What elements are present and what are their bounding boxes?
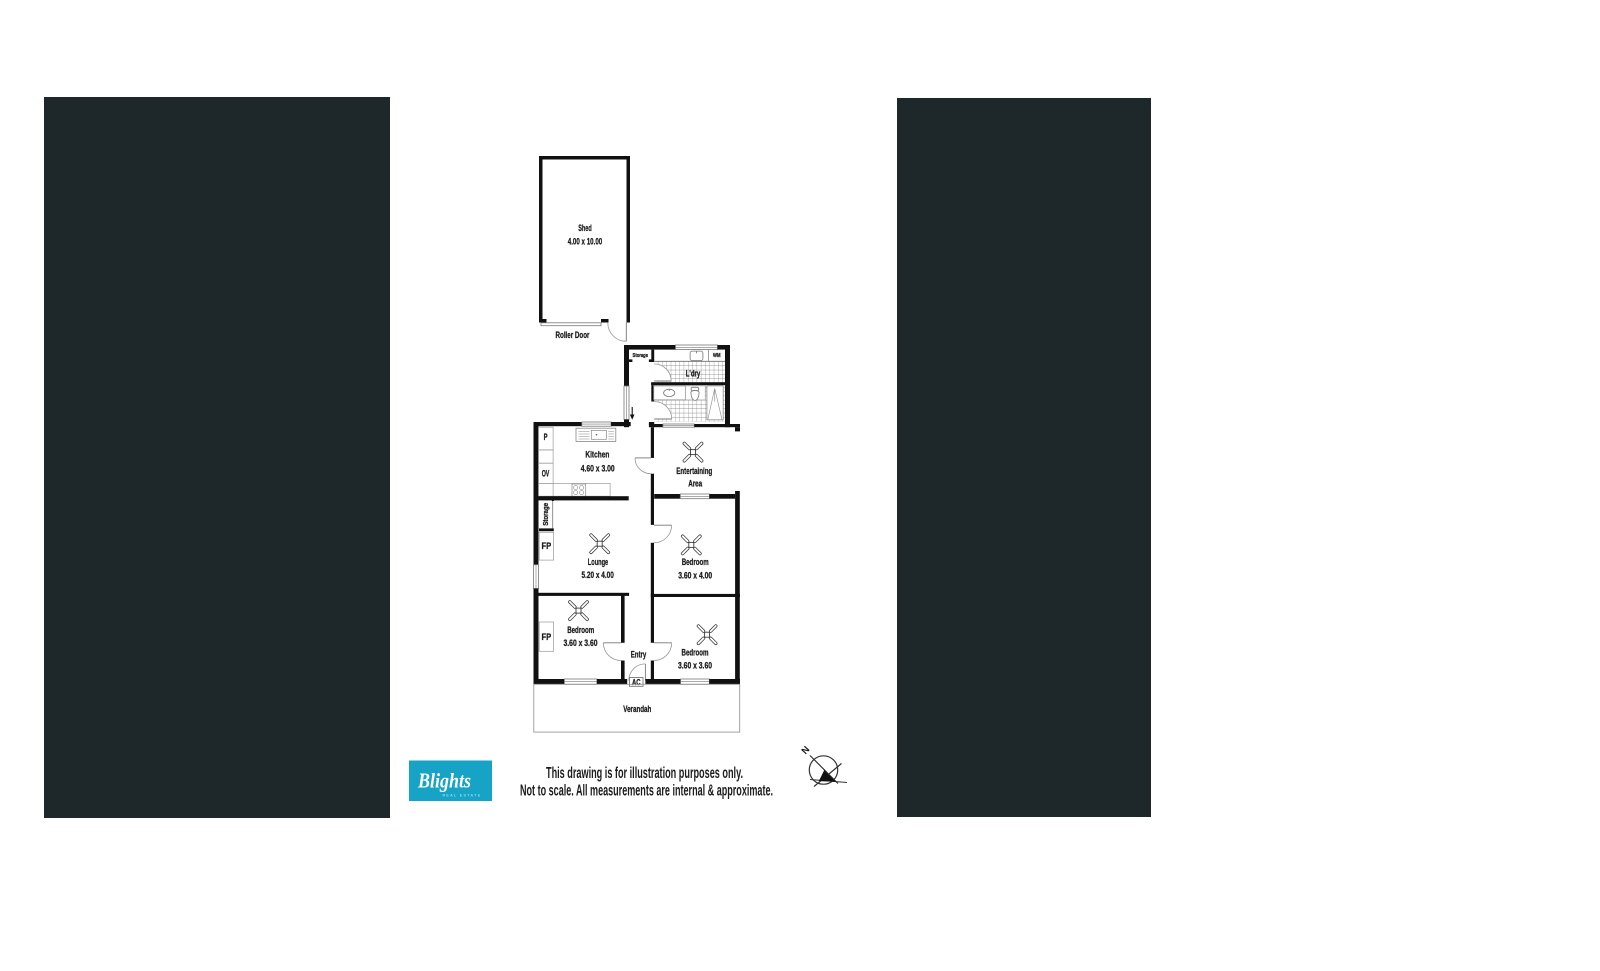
- svg-text:Entertaining: Entertaining: [676, 466, 712, 477]
- svg-text:5.20 x 4.00: 5.20 x 4.00: [582, 570, 614, 581]
- svg-text:OV: OV: [542, 468, 550, 479]
- svg-text:Bedroom: Bedroom: [682, 557, 709, 568]
- svg-text:Bedroom: Bedroom: [567, 625, 594, 636]
- svg-text:3.60 x 3.60: 3.60 x 3.60: [564, 638, 598, 649]
- svg-text:Roller Door: Roller Door: [556, 330, 590, 341]
- svg-text:Storage: Storage: [543, 503, 550, 526]
- svg-text:FP: FP: [542, 632, 552, 642]
- svg-text:Kitchen: Kitchen: [585, 450, 609, 461]
- svg-text:Bedroom: Bedroom: [682, 648, 709, 659]
- svg-text:This drawing is for illustrati: This drawing is for illustration purpose…: [546, 765, 743, 782]
- svg-text:3.60 x 4.00: 3.60 x 4.00: [678, 571, 712, 582]
- svg-text:Area: Area: [688, 479, 702, 490]
- svg-text:Shed: Shed: [578, 223, 592, 234]
- svg-text:L'dry: L'dry: [686, 369, 701, 380]
- svg-text:4.60 x 3.00: 4.60 x 3.00: [581, 463, 615, 474]
- svg-text:4.00 x 10.00: 4.00 x 10.00: [568, 237, 603, 248]
- svg-text:Not to scale. All measurements: Not to scale. All measurements are inter…: [520, 782, 773, 799]
- svg-text:Lounge: Lounge: [588, 557, 608, 568]
- svg-text:Entry: Entry: [631, 649, 647, 660]
- svg-text:P: P: [544, 432, 548, 443]
- svg-text:AC: AC: [632, 678, 641, 687]
- svg-text:3.60 x 3.60: 3.60 x 3.60: [678, 661, 712, 672]
- svg-text:REAL ESTATE: REAL ESTATE: [442, 794, 481, 798]
- svg-text:FP: FP: [542, 541, 552, 551]
- svg-text:Blights: Blights: [417, 769, 471, 793]
- svg-text:Storage: Storage: [633, 353, 649, 359]
- svg-text:Verandah: Verandah: [623, 704, 651, 715]
- svg-text:WM: WM: [713, 353, 721, 359]
